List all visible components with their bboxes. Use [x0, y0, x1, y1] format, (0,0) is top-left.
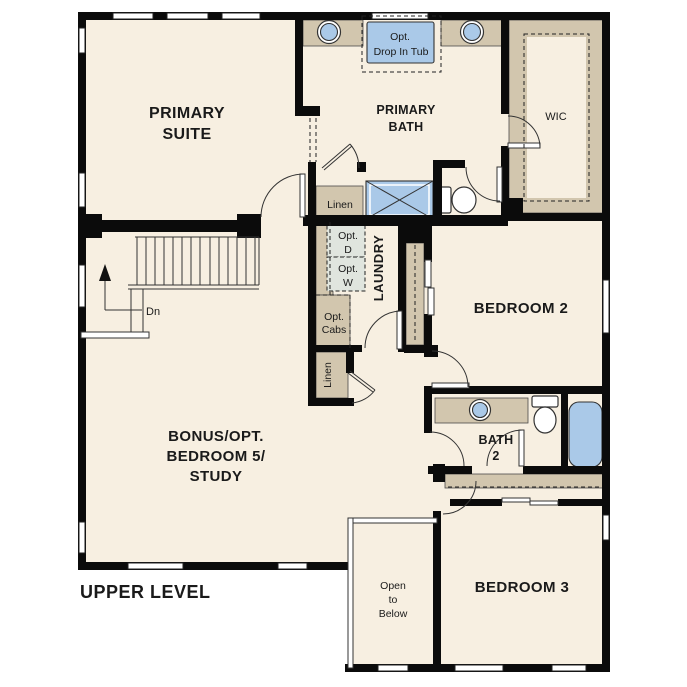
window-bonus-bottom-1 [128, 563, 183, 569]
window-bottom-1 [378, 665, 408, 671]
wall-suite-east [295, 12, 303, 108]
wall-hall-stub [433, 464, 445, 482]
floor-plan-svg: PRIMARY SUITE PRIMARY BATH Opt. Drop In … [0, 0, 687, 687]
wall-wic-block [501, 198, 523, 213]
window-left-3 [79, 265, 85, 307]
bonus-label-2: BEDROOM 5/ [166, 448, 265, 465]
linen-lower-label: Linen [322, 362, 334, 388]
wall-top [78, 12, 610, 20]
wall-laundry-west [308, 222, 316, 398]
opt-tub-label-1: Opt. [390, 31, 410, 43]
window-top-1 [113, 13, 153, 19]
bath2-toilet-tank [532, 396, 558, 407]
window-left-1 [79, 28, 85, 53]
bonus-label-1: BONUS/OPT. [168, 428, 264, 445]
floor-plan-page: PRIMARY SUITE PRIMARY BATH Opt. Drop In … [0, 0, 687, 687]
laundry-door-leaf [397, 311, 402, 349]
window-top-2 [167, 13, 208, 19]
linen-upper-label: Linen [327, 199, 353, 211]
wall-wic-west-upper [501, 12, 509, 114]
wall-suite-bottom-blockR [237, 214, 261, 238]
wall-b3closet-front-left [450, 499, 502, 506]
primary-sink-left [321, 24, 338, 41]
bedroom3-label: BEDROOM 3 [475, 579, 569, 596]
opt-cabs-label-1: Opt. [324, 311, 344, 323]
opt-dryer-label-1: Opt. [338, 230, 358, 242]
wall-bedroom2-west-mid [424, 314, 432, 350]
bath2-label-1: BATH [479, 433, 514, 447]
opt-washer-label-1: Opt. [338, 263, 358, 275]
primary-suite-label-2: SUITE [162, 126, 211, 143]
window-bonus-bottom-2 [278, 563, 307, 569]
wall-bonus-bottom [78, 562, 350, 570]
window-top-3 [222, 13, 260, 19]
railing-open-below-left [348, 518, 353, 668]
bedroom2-label: BEDROOM 2 [474, 300, 568, 317]
wall-tub-alcove [561, 394, 568, 470]
window-left-2 [79, 173, 85, 207]
open-below-label-2: to [389, 594, 398, 606]
opt-dryer-label-2: D [344, 244, 352, 256]
wall-laundry-bottom [308, 345, 362, 352]
bath2-toilet-bowl [534, 407, 556, 433]
primary-sink-right [464, 24, 481, 41]
primary-suite-label-1: PRIMARY [149, 105, 225, 122]
opt-washer-label-2: W [343, 277, 353, 289]
wall-suite-jog [295, 106, 320, 116]
wall-b3closet-front-right [558, 499, 603, 506]
wall-bedroom2-west-upper [424, 222, 432, 262]
wall-right [602, 12, 610, 672]
laundry-label: LAUNDRY [371, 235, 386, 302]
window-left-4 [79, 522, 85, 553]
bedroom3-closet [445, 474, 603, 488]
opt-tub-label-2: Drop In Tub [374, 46, 429, 58]
plan-title: UPPER LEVEL [80, 582, 211, 602]
primary-wc-door-leaf [497, 167, 502, 202]
wall-bedroom2-west-block [424, 347, 438, 357]
wall-linen-lower-bottom [308, 398, 354, 406]
wall-suite-bottom [86, 220, 258, 232]
wall-wic-bottom [501, 213, 602, 221]
wall-suite-bottom-blockL [86, 214, 102, 238]
wall-bath2-west [424, 394, 432, 433]
railing-open-below-top [348, 518, 437, 523]
primary-bath-label-2: BATH [389, 120, 424, 134]
primary-suite-door-leaf [300, 174, 305, 217]
window-right-bedroom3 [603, 515, 609, 540]
wall-wc-west [433, 160, 442, 218]
bath2-label-2: 2 [492, 449, 499, 463]
opt-cabs-label-2: Cabs [322, 324, 347, 336]
bonus-label-3: STUDY [190, 468, 243, 485]
wall-wc-north [433, 160, 465, 168]
bedroom3-closet-panel-1 [502, 498, 530, 502]
bedroom2-door-leaf [432, 383, 469, 388]
primary-toilet-bowl [452, 187, 476, 213]
open-below-label-3: Below [379, 608, 408, 620]
bath2-sink [473, 403, 488, 418]
wall-linen-lower-east [346, 352, 354, 373]
stair-guard [81, 332, 149, 338]
window-bottom-3 [552, 665, 586, 671]
wic-label: WIC [545, 111, 566, 123]
window-bottom-2 [455, 665, 503, 671]
bath2-wc-door-leaf [519, 430, 524, 466]
bedroom3-closet-panel-2 [530, 501, 558, 505]
primary-bath-label-1: PRIMARY [376, 103, 436, 117]
bedroom2-closet-panel-2 [428, 288, 434, 315]
wall-bedroom3-west [433, 511, 441, 668]
wall-bath2-south-right [523, 466, 607, 474]
window-right-bedroom2 [603, 280, 609, 333]
wall-column-west-upper [308, 162, 316, 222]
open-below-label-1: Open [380, 580, 406, 592]
stairs-down-label: Dn [146, 306, 160, 318]
bedroom2-closet-panel-1 [425, 260, 431, 287]
bath2-tub [569, 402, 602, 467]
